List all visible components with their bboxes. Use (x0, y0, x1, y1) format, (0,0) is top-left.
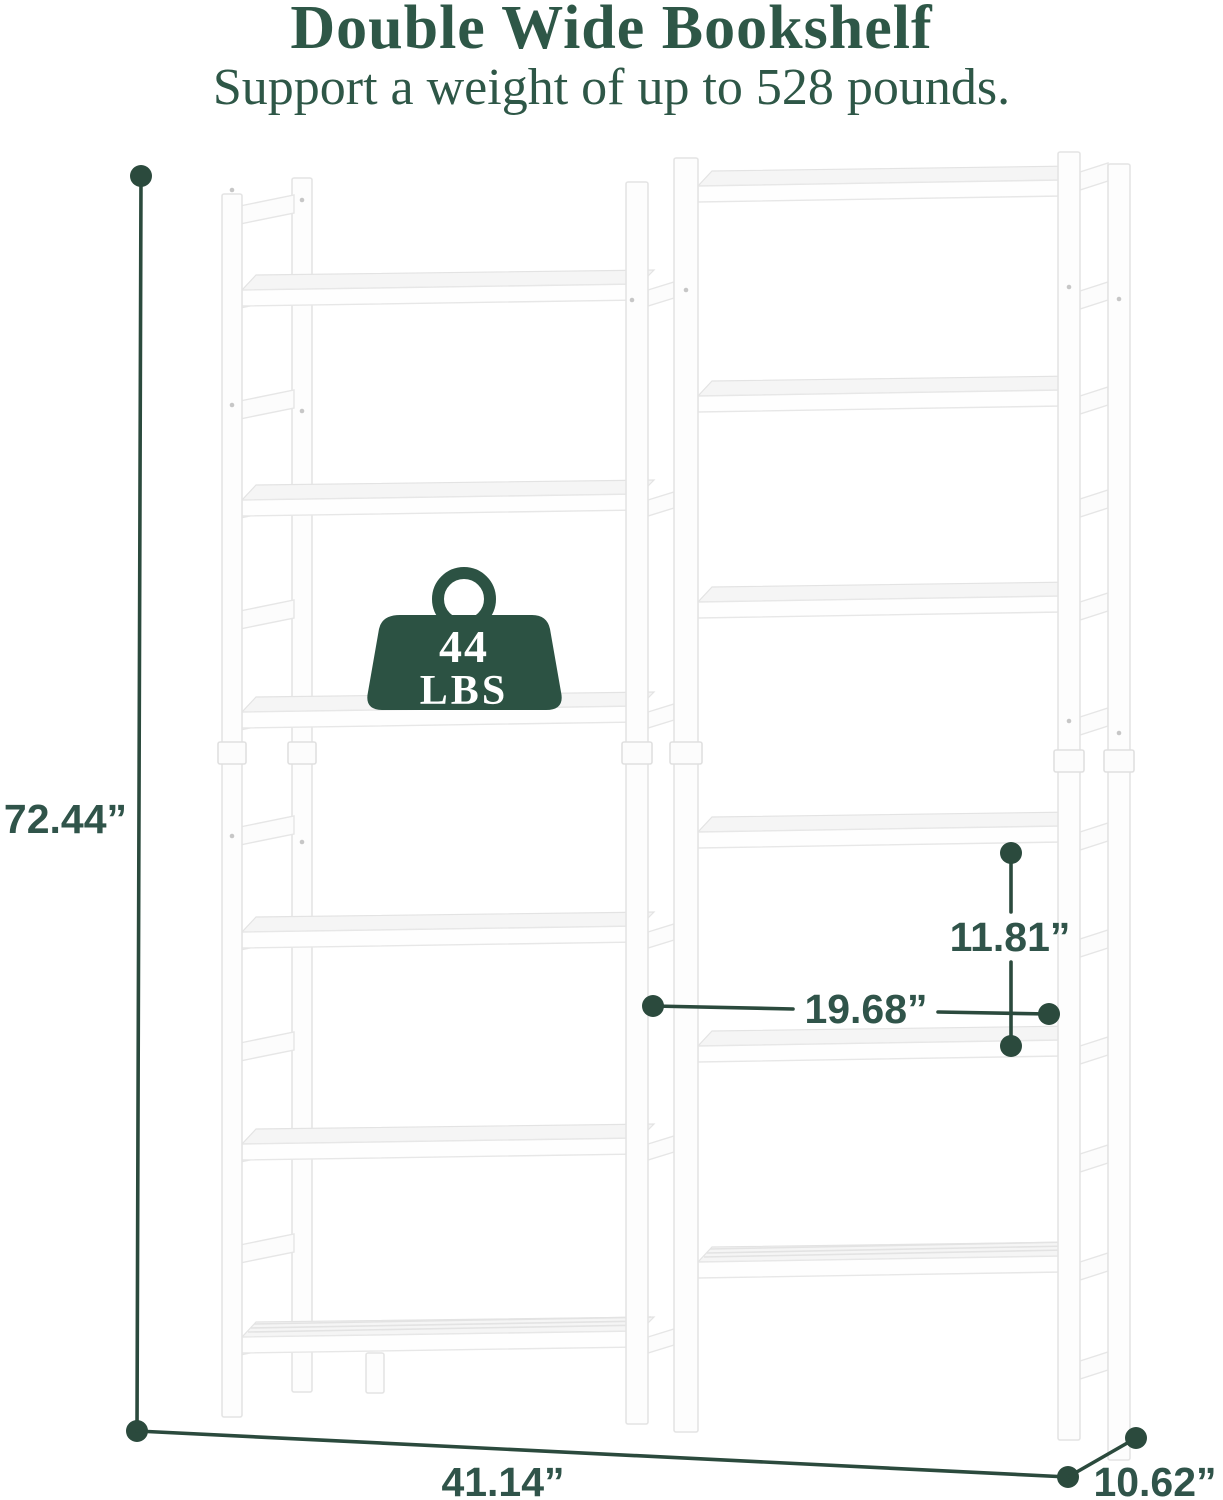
shelf-spacing-label: 11.81” (950, 914, 1071, 960)
left-unit-front-post (222, 194, 242, 1417)
depth-dimension: 10.62” (1068, 1427, 1217, 1500)
product-infographic: Double Wide Bookshelf Support a weight o… (0, 0, 1223, 1500)
shelf-width-dimension: 19.68” (642, 986, 1060, 1032)
bookshelf-illustration: 44 LBS 72.44” 41.14” 10.62” (0, 0, 1223, 1500)
shelf-width-label: 19.68” (804, 986, 927, 1032)
right-unit-back-post (1058, 152, 1080, 1440)
shelf-spacing-dimension: 11.81” (950, 842, 1071, 1057)
height-dimension: 72.44” (4, 165, 152, 1442)
height-dimension-label: 72.44” (4, 796, 127, 842)
center-right-post (674, 158, 698, 1432)
left-unit-back-post (292, 178, 312, 1392)
width-dimension-label: 41.14” (441, 1459, 564, 1500)
depth-dimension-label: 10.62” (1093, 1459, 1216, 1500)
center-frame-rungs (648, 282, 674, 1353)
left-frame-rungs (240, 195, 294, 1355)
weight-value: 44 (439, 621, 489, 672)
left-unit-rear-leg (366, 1353, 384, 1393)
width-dimension: 41.14” (137, 1431, 1079, 1500)
right-unit-shelves (698, 166, 1076, 1278)
center-left-post (626, 182, 648, 1424)
right-unit-front-post (1108, 164, 1130, 1460)
bookshelf (218, 152, 1134, 1460)
weight-badge: 44 LBS (367, 573, 561, 714)
weight-unit: LBS (420, 668, 508, 714)
